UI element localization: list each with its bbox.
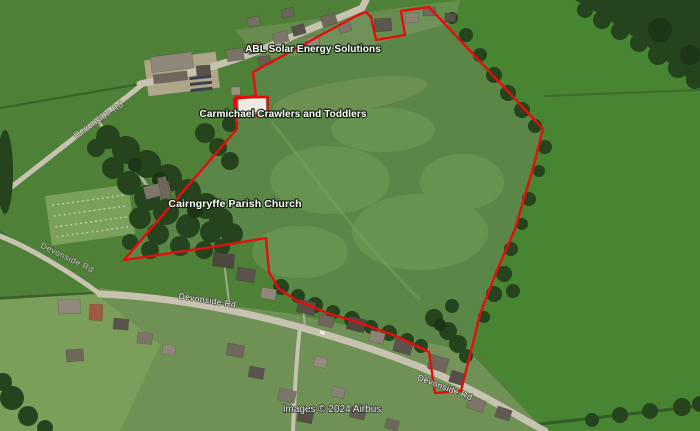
fields-layer [0,0,700,431]
imagery-attribution: Images © 2024 Airbus [283,404,382,415]
label-parish-church[interactable]: Cairngryffe Parish Church [168,198,301,210]
satellite-map[interactable]: ABL Solar Energy Solutions Carmichael Cr… [0,0,700,431]
label-playgroup[interactable]: Carmichael Crawlers and Toddlers [200,109,367,120]
label-solar-business[interactable]: ABL Solar Energy Solutions [245,44,381,55]
satellite-imagery: ABL Solar Energy Solutions Carmichael Cr… [0,0,700,431]
